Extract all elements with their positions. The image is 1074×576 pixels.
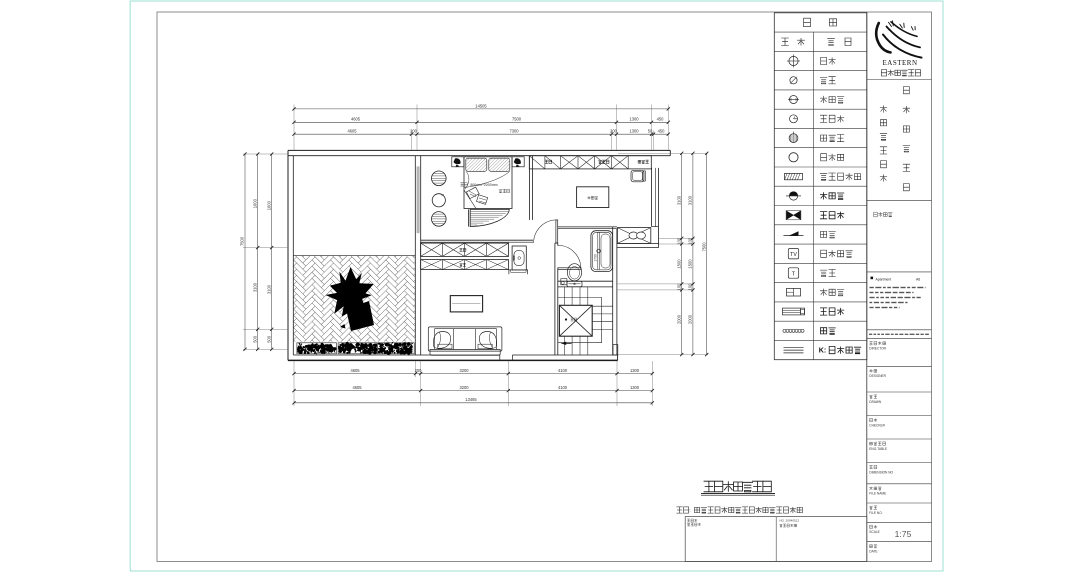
- svg-text:500: 500: [266, 335, 271, 343]
- svg-text:13465: 13465: [465, 397, 477, 402]
- svg-text:A6: A6: [916, 277, 920, 281]
- svg-text:3200: 3200: [459, 368, 469, 373]
- svg-text:1600: 1600: [252, 198, 257, 208]
- svg-text:100: 100: [688, 237, 693, 245]
- svg-text:1300: 1300: [630, 385, 640, 390]
- svg-text:1600: 1600: [266, 200, 271, 210]
- svg-text:SCALE: SCALE: [869, 530, 879, 534]
- svg-text:50: 50: [648, 129, 653, 134]
- svg-text:EASTERN: EASTERN: [883, 59, 918, 67]
- svg-text:NO. 20040512: NO. 20040512: [780, 519, 800, 523]
- svg-text:Apartment: Apartment: [876, 277, 892, 281]
- svg-text:200: 200: [415, 368, 423, 373]
- svg-text:FILE NO.: FILE NO.: [869, 511, 882, 515]
- svg-text:200: 200: [610, 129, 618, 134]
- svg-text:450: 450: [658, 129, 666, 134]
- svg-text:2000: 2000: [688, 314, 693, 324]
- svg-text:7300: 7300: [509, 129, 519, 134]
- svg-text:DESIGNER: DESIGNER: [869, 374, 886, 378]
- svg-text:4605: 4605: [352, 385, 362, 390]
- svg-text:DRAWN: DRAWN: [869, 400, 882, 404]
- svg-text:DIMENSION NO: DIMENSION NO: [869, 470, 893, 474]
- svg-text:1300: 1300: [629, 129, 639, 134]
- svg-text:14505: 14505: [475, 103, 487, 108]
- svg-text:1:75: 1:75: [895, 529, 912, 539]
- svg-text:3100: 3100: [688, 195, 693, 205]
- svg-text:100: 100: [676, 283, 681, 291]
- svg-text:2000: 2000: [676, 314, 681, 324]
- svg-text:FILE NAME: FILE NAME: [869, 492, 886, 496]
- svg-text:ENG-TABLE: ENG-TABLE: [869, 447, 887, 451]
- svg-text:DATE: DATE: [869, 549, 877, 553]
- svg-text:7500: 7500: [240, 236, 245, 246]
- svg-text:DIRECTOR: DIRECTOR: [869, 346, 886, 350]
- svg-text:450: 450: [657, 117, 665, 122]
- svg-text:3100: 3100: [266, 284, 271, 294]
- svg-text:4605: 4605: [347, 129, 357, 134]
- svg-text:1500: 1500: [676, 259, 681, 269]
- svg-text:1300: 1300: [629, 117, 639, 122]
- svg-text:1500: 1500: [688, 259, 693, 269]
- svg-text:100: 100: [688, 283, 693, 291]
- svg-text:3100: 3100: [676, 195, 681, 205]
- svg-text:1700: 1700: [593, 254, 597, 262]
- svg-text:3200: 3200: [459, 385, 469, 390]
- svg-text:4605: 4605: [351, 117, 361, 122]
- svg-text:800mm*2000mm: 800mm*2000mm: [470, 183, 497, 187]
- svg-text:TV: TV: [790, 252, 797, 258]
- svg-text:CHECKER: CHECKER: [869, 423, 885, 427]
- svg-text:4100: 4100: [558, 368, 568, 373]
- svg-text:4100: 4100: [558, 385, 568, 390]
- svg-text:7500: 7500: [512, 117, 522, 122]
- svg-text:7500: 7500: [701, 242, 706, 252]
- svg-text:4605: 4605: [350, 368, 360, 373]
- svg-text:500: 500: [252, 335, 257, 343]
- svg-text:K:: K:: [819, 348, 826, 355]
- svg-text:3100: 3100: [252, 282, 257, 292]
- svg-text:200: 200: [410, 129, 418, 134]
- svg-text::: :: [689, 508, 690, 514]
- svg-text:1300: 1300: [630, 368, 640, 373]
- svg-text:100: 100: [676, 237, 681, 245]
